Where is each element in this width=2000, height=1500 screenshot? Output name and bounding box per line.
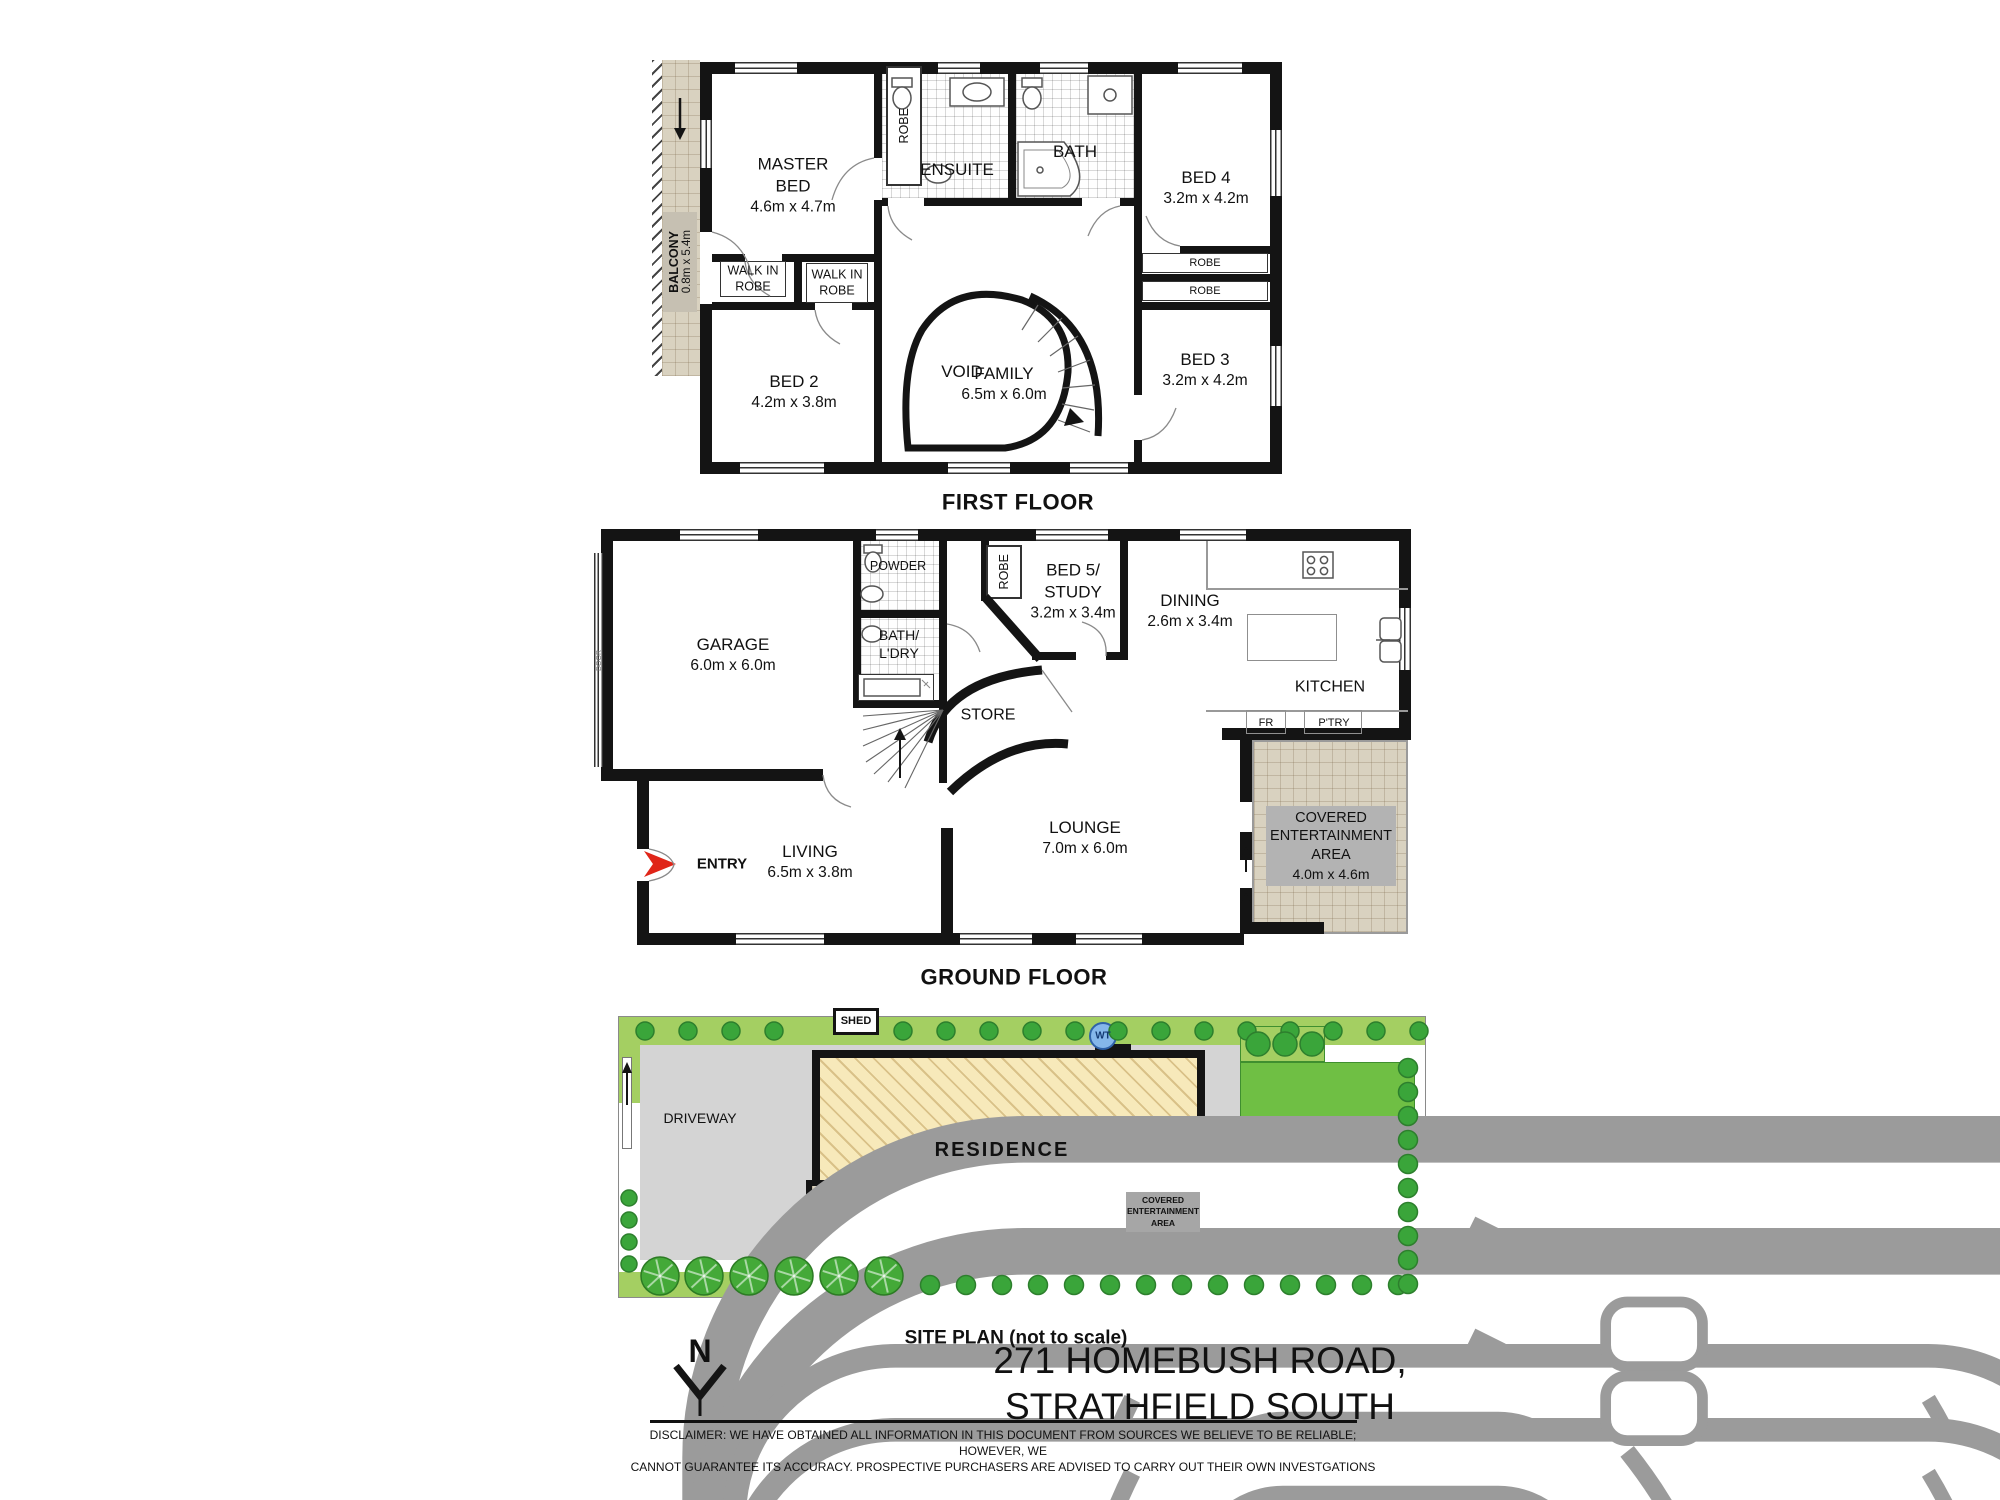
site-cea-label-box: COVERED ENTERTAINMENT AREA xyxy=(1126,1192,1200,1232)
pantry-label: P'TRY xyxy=(1318,716,1349,730)
cea-label-box: COVERED ENTERTAINMENT AREA4.0m x 4.6m xyxy=(1266,806,1396,886)
room-label-powder: POWDER xyxy=(870,559,926,575)
room-label-bed5-study: BED 5/ STUDY3.2m x 3.4m xyxy=(1030,538,1115,647)
water-tank-label: WT xyxy=(1095,1030,1111,1043)
ground-floor-title: GROUND FLOOR xyxy=(921,964,1108,993)
robe-label: ROBE xyxy=(988,547,1020,597)
room-label-lounge: LOUNGE7.0m x 6.0m xyxy=(1042,795,1127,881)
shed-label: SHED xyxy=(841,1014,872,1028)
north-label: N xyxy=(688,1331,711,1373)
room-label-family: FAMILY6.5m x 6.0m xyxy=(961,341,1046,427)
walk-in-robe-label: WALK IN ROBE xyxy=(728,263,779,294)
fridge-label: FR xyxy=(1259,716,1274,730)
void-label: VOID xyxy=(941,361,983,383)
floorplan-document: BALCONY 0.8m x 5.4m MASTER BED4.6m x 4.7… xyxy=(0,0,2000,1500)
walk-in-robe-label: WALK IN ROBE xyxy=(812,267,863,298)
room-label-bath: BATH xyxy=(1053,141,1097,163)
room-label-ensuite: ENSUITE xyxy=(920,159,994,181)
garage-door-label: DOOR xyxy=(592,630,606,690)
room-label-bath-ldry: BATH/ L'DRY xyxy=(879,626,919,662)
property-address: 271 HOMEBUSH ROAD, STRATHFIELD SOUTH xyxy=(960,1342,1440,1425)
balcony-label: BALCONY 0.8m x 5.4m xyxy=(663,212,697,312)
robe-label: ROBE xyxy=(1189,284,1220,298)
disclaimer: DISCLAIMER: WE HAVE OBTAINED ALL INFORMA… xyxy=(620,1427,1386,1476)
robe-label: ROBE xyxy=(888,76,920,176)
room-label-master-bed: MASTER BED4.6m x 4.7m xyxy=(750,132,835,241)
room-label-dining: DINING2.6m x 3.4m xyxy=(1147,568,1232,654)
room-label-living: LIVING6.5m x 3.8m xyxy=(767,819,852,905)
room-label-store: STORE xyxy=(961,706,1016,727)
entry-label: ENTRY xyxy=(697,854,747,874)
room-label-bed4: BED 43.2m x 4.2m xyxy=(1163,145,1248,231)
labels: BALCONY 0.8m x 5.4m MASTER BED4.6m x 4.7… xyxy=(0,0,2000,1500)
room-label-bed3: BED 33.2m x 4.2m xyxy=(1162,327,1247,413)
robe-label: ROBE xyxy=(1189,256,1220,270)
residence-label: RESIDENCE xyxy=(935,1137,1070,1163)
driveway-label: DRIVEWAY xyxy=(663,1109,736,1127)
divider xyxy=(650,1420,1357,1423)
room-label-bed2: BED 24.2m x 3.8m xyxy=(751,349,836,435)
room-label-garage: GARAGE6.0m x 6.0m xyxy=(690,612,775,698)
room-label-kitchen: KITCHEN xyxy=(1295,678,1365,699)
first-floor-title: FIRST FLOOR xyxy=(942,489,1094,518)
